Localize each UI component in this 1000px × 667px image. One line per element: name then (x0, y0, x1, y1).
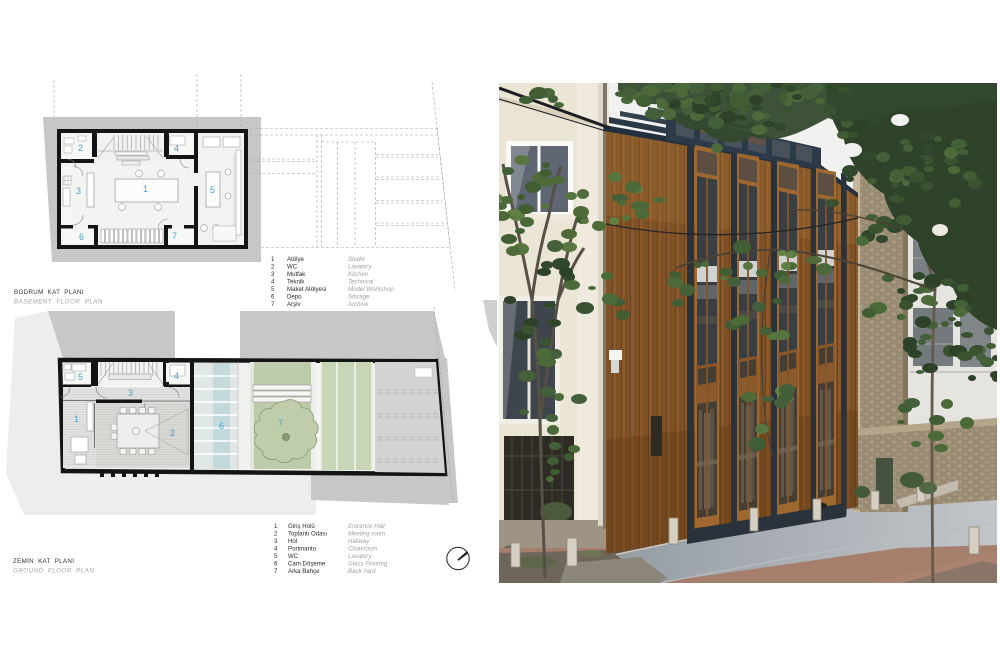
svg-text:6: 6 (79, 232, 84, 242)
svg-text:5: 5 (210, 185, 215, 195)
svg-text:2: 2 (274, 531, 278, 538)
svg-text:Kitchen: Kitchen (348, 271, 369, 278)
svg-text:Studio: Studio (348, 256, 366, 263)
svg-text:Depo: Depo (287, 294, 302, 301)
svg-text:ZEMİN KAT PLANI: ZEMİN KAT PLANI (13, 558, 74, 565)
svg-text:1: 1 (74, 414, 79, 424)
svg-text:Teknik: Teknik (287, 279, 305, 286)
svg-text:Meeting room: Meeting room (348, 531, 385, 538)
svg-text:Toplantı Odası: Toplantı Odası (288, 531, 328, 538)
svg-text:Technical: Technical (348, 279, 374, 286)
svg-text:5: 5 (78, 372, 83, 382)
svg-text:Maket Atölyesi: Maket Atölyesi (287, 286, 326, 293)
svg-text:Cam Döşeme: Cam Döşeme (288, 561, 326, 568)
svg-text:Portmanto: Portmanto (288, 546, 317, 553)
svg-text:WC: WC (288, 553, 299, 560)
svg-text:2: 2 (170, 428, 175, 438)
svg-text:Lavatory: Lavatory (348, 264, 372, 271)
svg-text:Giriş Holü: Giriş Holü (288, 523, 315, 530)
svg-text:3: 3 (128, 388, 133, 398)
svg-text:4: 4 (274, 546, 278, 553)
svg-text:Mutfak: Mutfak (287, 271, 306, 278)
svg-text:Entrance Hall: Entrance Hall (348, 523, 385, 530)
svg-text:2: 2 (78, 143, 83, 153)
svg-text:5: 5 (271, 286, 275, 293)
svg-text:4: 4 (174, 371, 179, 381)
svg-text:1: 1 (271, 256, 275, 263)
svg-text:WC: WC (287, 264, 298, 271)
svg-text:1: 1 (274, 523, 278, 530)
svg-text:5: 5 (274, 553, 278, 560)
svg-text:Hallway: Hallway (348, 538, 370, 545)
svg-text:Back Yard: Back Yard (348, 568, 376, 575)
svg-text:Archive: Archive (347, 301, 369, 308)
svg-text:3: 3 (76, 186, 81, 196)
svg-text:7: 7 (274, 568, 278, 575)
svg-text:6: 6 (219, 421, 224, 431)
svg-text:Arşiv: Arşiv (287, 301, 301, 308)
svg-text:6: 6 (274, 561, 278, 568)
svg-text:BASEMENT FLOOR PLAN: BASEMENT FLOOR PLAN (14, 299, 103, 306)
svg-text:Glass Flooring: Glass Flooring (348, 561, 388, 568)
svg-text:3: 3 (274, 538, 278, 545)
svg-text:3: 3 (271, 271, 275, 278)
svg-text:1: 1 (143, 184, 148, 194)
svg-text:7: 7 (271, 301, 275, 308)
svg-text:BODRUM KAT PLANI: BODRUM KAT PLANI (14, 289, 84, 296)
svg-text:Atölye: Atölye (287, 256, 305, 263)
svg-text:Model Workshop: Model Workshop (348, 286, 394, 293)
svg-text:Storage: Storage (348, 294, 370, 301)
svg-text:7: 7 (278, 418, 283, 428)
svg-text:Arka Bahçe: Arka Bahçe (288, 568, 320, 575)
svg-text:2: 2 (271, 264, 275, 271)
svg-text:6: 6 (271, 294, 275, 301)
svg-text:GROUND FLOOR PLAN: GROUND FLOOR PLAN (13, 568, 94, 575)
svg-text:4: 4 (271, 279, 275, 286)
svg-text:7: 7 (172, 231, 177, 241)
svg-text:Hol: Hol (288, 538, 297, 545)
svg-text:4: 4 (174, 144, 179, 154)
svg-text:Lavatory: Lavatory (348, 553, 372, 560)
svg-text:Cloakroom: Cloakroom (348, 546, 377, 553)
